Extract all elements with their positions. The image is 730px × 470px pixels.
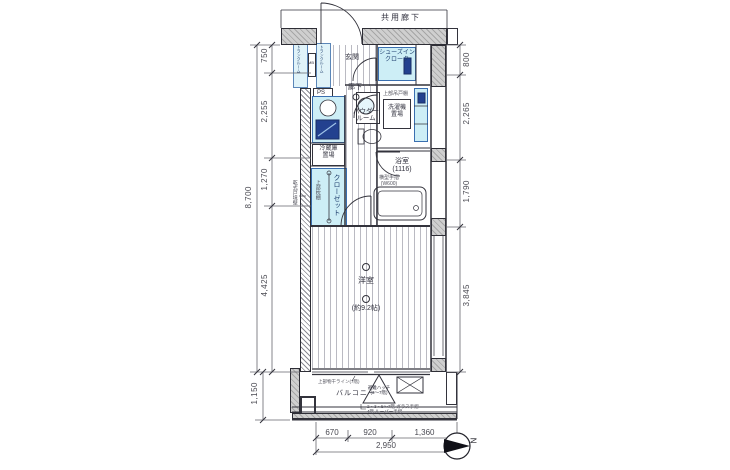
trunk-left-label: トランクルーム (296, 45, 301, 73)
railing-note: 2・3・5〜7階 ガラス手摺 4階 ルーバー手摺 (367, 404, 419, 414)
wall-top-return (447, 28, 458, 45)
dim-right-800: 800 (462, 52, 471, 67)
dim-right-3845: 3,845 (462, 284, 471, 307)
wall-left-party (300, 88, 311, 372)
fridge-label: 冷蔵庫 置場 (316, 146, 341, 160)
dim-left-750: 750 (260, 48, 269, 63)
dim-left-total: 8,700 (244, 186, 253, 209)
dim-bottom-total: 2,950 (346, 441, 426, 450)
dim-balcony-depth: 1,150 (250, 382, 259, 405)
room-size-label: (約9.2帖) (346, 305, 386, 313)
dim-bottom-670: 670 (316, 428, 348, 437)
bath-handrail-note: 横型手摺 (W600) (372, 176, 406, 188)
room-label: 洋室 (352, 276, 380, 285)
closet-shelf-note: 上部枕棚 (314, 180, 320, 200)
trunk-right-label: トランクルーム (319, 45, 324, 73)
entrance-floor (333, 45, 377, 86)
entrance-label: 玄関 (345, 54, 359, 62)
evac-hatch-label: 避難ハッチ (3〜7階) (361, 385, 397, 395)
tall-cabinet (414, 88, 428, 142)
wall-right-4 (431, 358, 446, 372)
dim-left-2255: 2,255 (260, 100, 269, 123)
shoes-closet-label: シューズイン クローク (379, 50, 415, 64)
hallway-label: 廊下 (348, 84, 362, 92)
dim-right-2265: 2,265 (462, 102, 471, 125)
wall-right-3 (431, 218, 446, 236)
laundry-line-note: 上部物干ライン(7階) (318, 379, 360, 384)
wall-top-left (281, 28, 317, 45)
wall-right-2 (431, 148, 446, 162)
powder-room-label: パウダー ルーム (352, 108, 380, 123)
wall-top-right (362, 28, 447, 45)
meter-box-label: MB (308, 61, 314, 66)
wall-balcony-left (290, 368, 300, 413)
dim-bottom-1360: 1,360 (392, 428, 457, 437)
dim-bottom-920: 920 (348, 428, 392, 437)
party-wall-note: 乾式戸境壁 (291, 180, 297, 205)
kitchen-counter (312, 96, 345, 143)
closet-label: クローゼット (332, 174, 340, 216)
pipe-space-label: PS (317, 90, 325, 97)
wall-right-1 (431, 45, 446, 87)
floor-plan: 共用廊下 玄関 シューズイン クローク 廊下 パウダー ルーム 上部吊戸棚 洗濯… (0, 0, 730, 470)
dim-left-4425: 4,425 (260, 274, 269, 297)
bath-label: 浴室 (1116) (382, 158, 422, 174)
common-corridor-label: 共用廊下 (381, 13, 421, 22)
dim-left-1270: 1,270 (260, 168, 269, 191)
upper-cabinet-note: 上部吊戸棚 (383, 92, 408, 98)
room-floor (312, 227, 431, 368)
north-label: N (468, 438, 477, 444)
washer-label: 洗濯機 置場 (384, 105, 410, 119)
dim-right-1790: 1,790 (462, 180, 471, 203)
wall-balcony-right (446, 372, 457, 405)
